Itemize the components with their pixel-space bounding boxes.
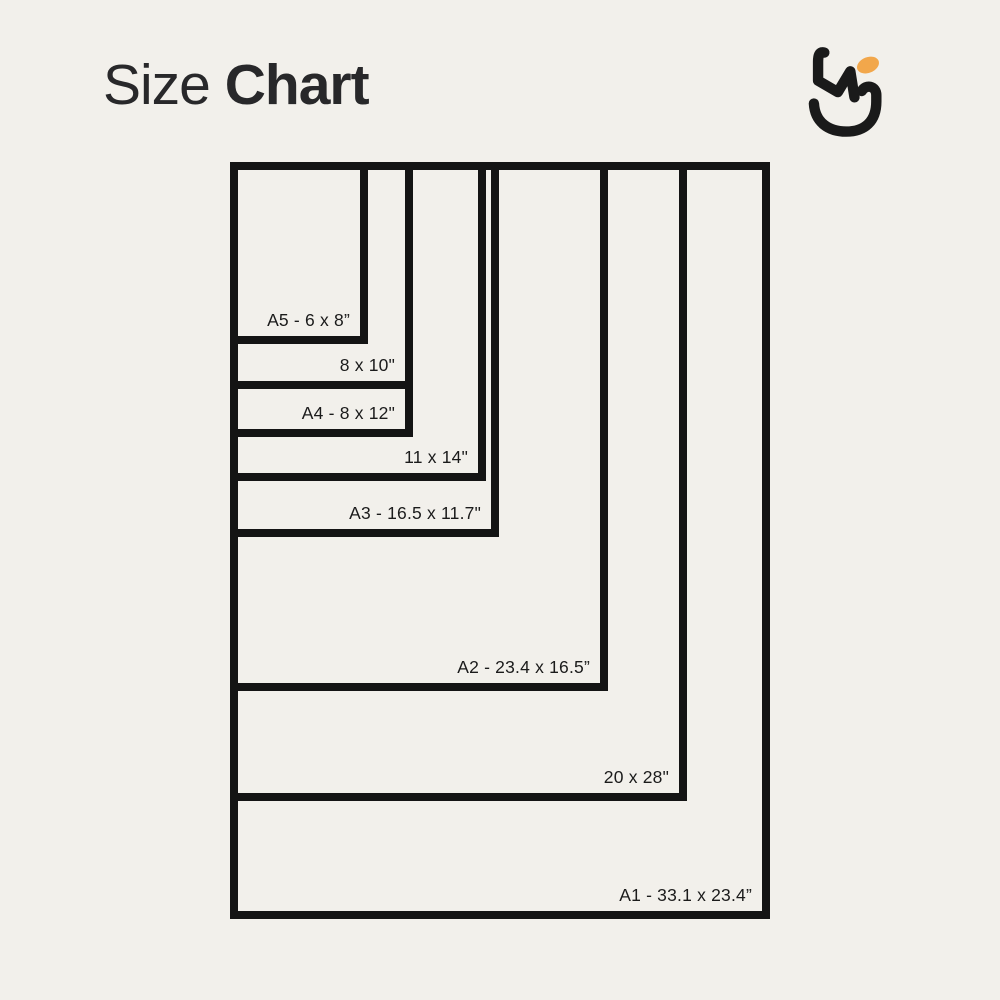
size-label-11x14: 11 x 14" <box>404 447 468 468</box>
size-rect-A5: A5 - 6 x 8” <box>230 162 368 344</box>
size-label-A1: A1 - 33.1 x 23.4” <box>619 885 752 906</box>
size-label-A2: A2 - 23.4 x 16.5” <box>457 657 590 678</box>
size-label-A3: A3 - 16.5 x 11.7" <box>349 503 481 524</box>
size-label-A5: A5 - 6 x 8” <box>267 310 350 331</box>
size-label-A4: A4 - 8 x 12" <box>302 403 395 424</box>
size-label-20x28: 20 x 28" <box>604 767 669 788</box>
size-label-8x10: 8 x 10" <box>340 355 395 376</box>
size-chart: A1 - 33.1 x 23.4”20 x 28"A2 - 23.4 x 16.… <box>0 0 1000 1000</box>
